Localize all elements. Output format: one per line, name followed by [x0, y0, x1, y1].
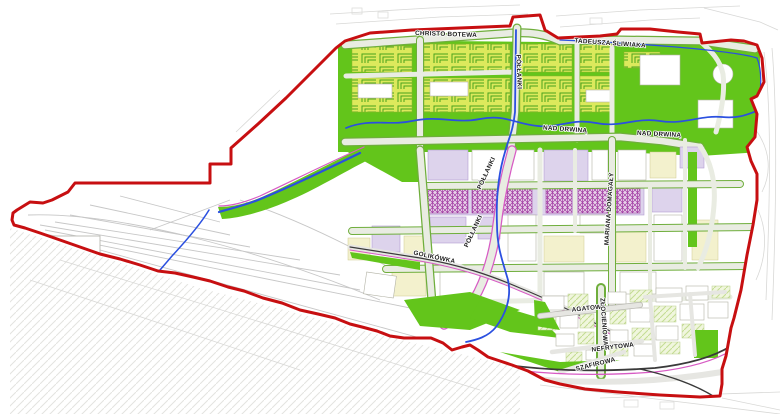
- plan-map-canvas: CHRISTO BOTEWATADEUSZA ŚLIWIAKAPÓŁŁANKIN…: [0, 0, 780, 414]
- plan-map-image[interactable]: CHRISTO BOTEWATADEUSZA ŚLIWIAKAPÓŁŁANKIN…: [0, 0, 780, 414]
